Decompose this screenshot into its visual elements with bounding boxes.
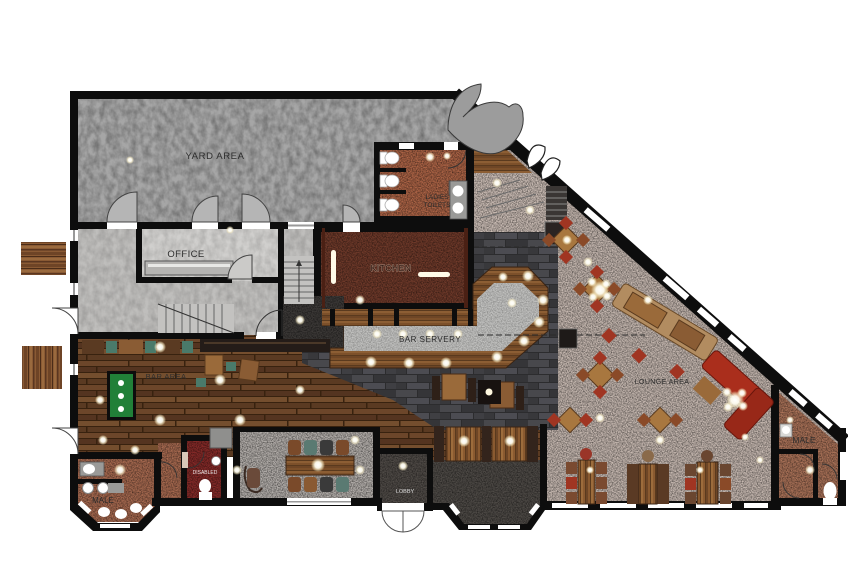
svg-text:KITCHEN: KITCHEN [371, 263, 412, 273]
svg-text:LADIES: LADIES [425, 194, 449, 201]
svg-text:OFFICE: OFFICE [167, 249, 204, 260]
svg-text:DISABLED: DISABLED [193, 470, 218, 476]
svg-text:BAR AREA: BAR AREA [146, 372, 187, 381]
svg-text:LOBBY: LOBBY [396, 489, 415, 495]
svg-text:LOUNGE AREA: LOUNGE AREA [635, 379, 690, 386]
svg-text:YARD AREA: YARD AREA [185, 151, 244, 162]
svg-text:MALE: MALE [92, 496, 114, 505]
svg-text:BAR SERVERY: BAR SERVERY [399, 335, 461, 344]
svg-text:TOILETS: TOILETS [424, 202, 452, 209]
svg-text:MALE: MALE [792, 435, 815, 445]
